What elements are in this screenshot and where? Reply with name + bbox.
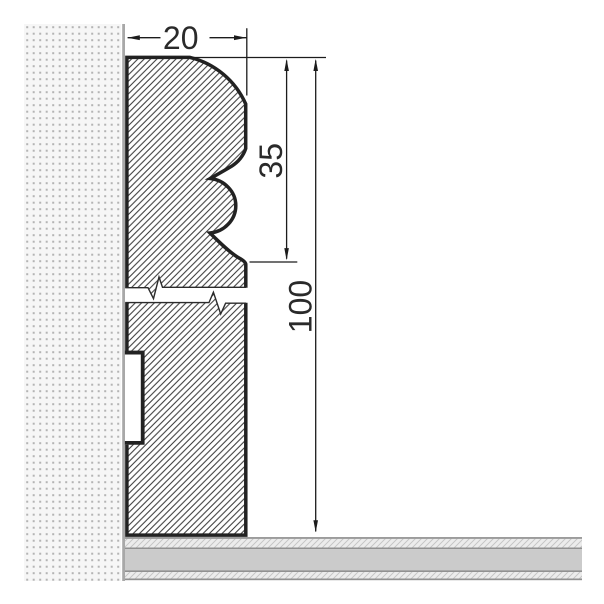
svg-text:20: 20 (163, 20, 199, 56)
svg-text:100: 100 (282, 280, 318, 333)
svg-text:35: 35 (253, 143, 289, 179)
